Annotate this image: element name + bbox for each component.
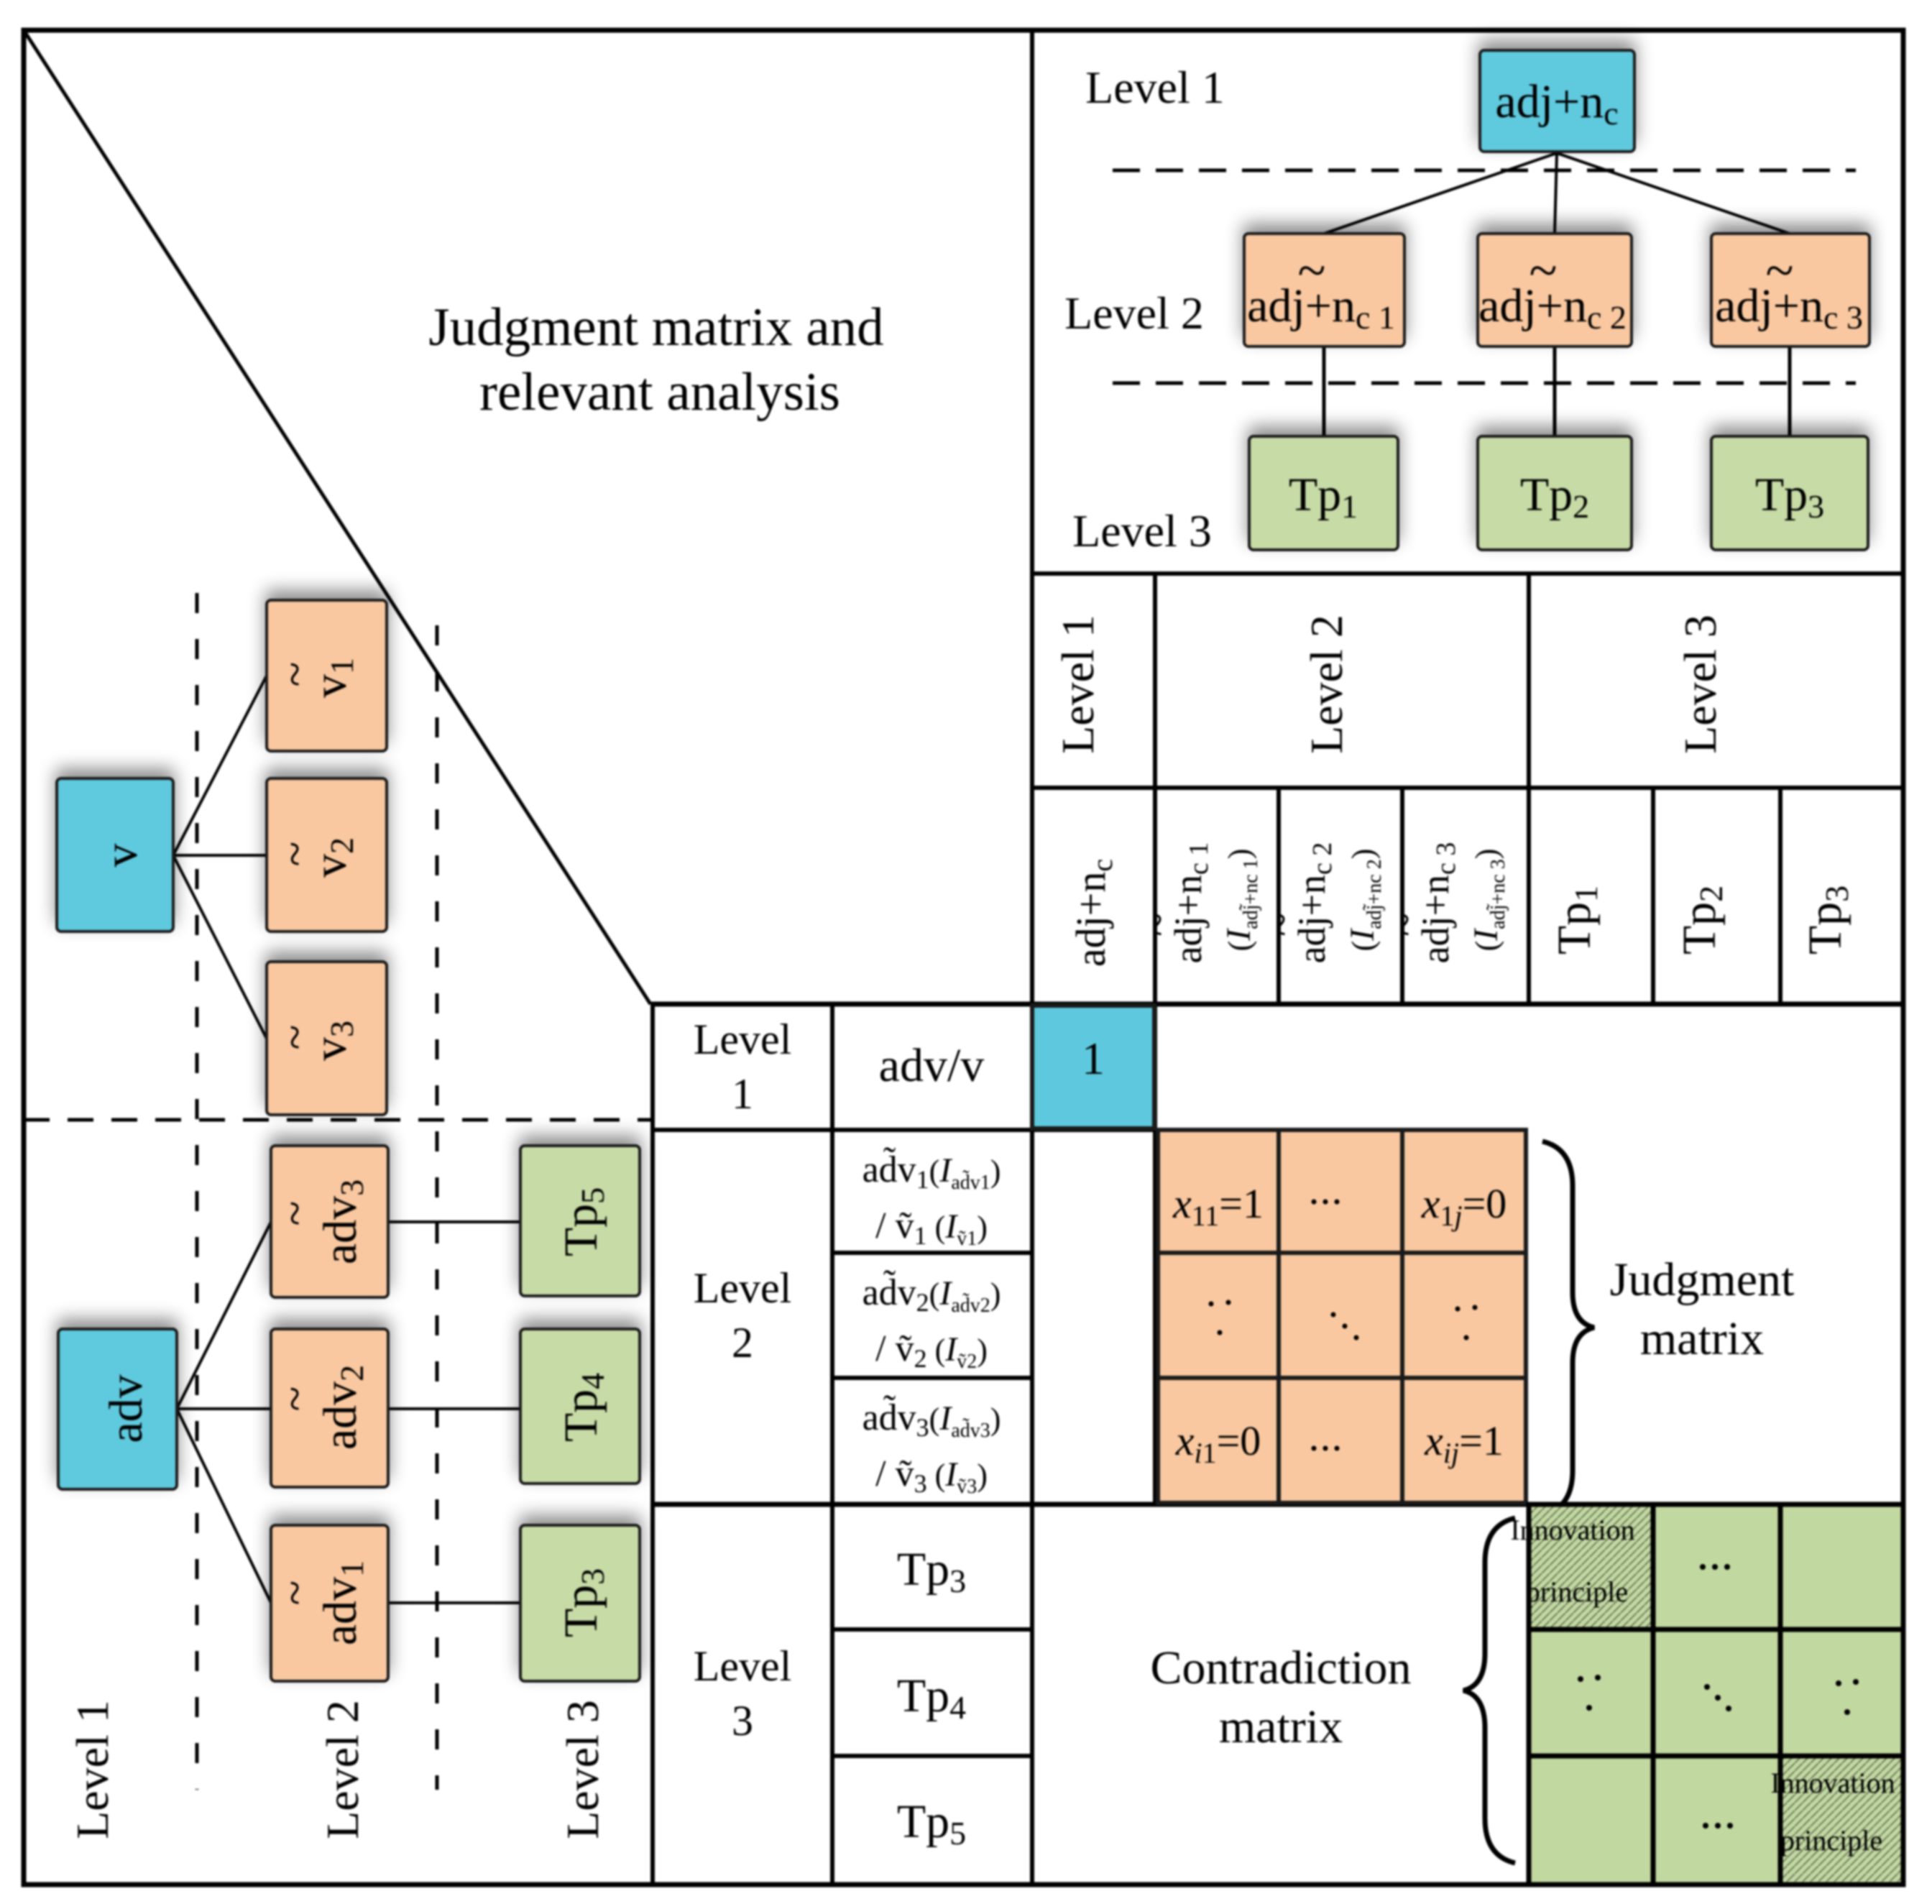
svg-text:matrix: matrix — [1219, 1701, 1343, 1753]
svg-text:~: ~ — [1529, 242, 1558, 299]
svg-text:Judgment matrix and: Judgment matrix and — [428, 298, 883, 357]
svg-text:~: ~ — [269, 1581, 320, 1606]
svg-text:~: ~ — [269, 842, 320, 867]
svg-text:Judgment: Judgment — [1610, 1254, 1795, 1306]
svg-text:Level 1: Level 1 — [1052, 615, 1103, 754]
svg-text:Level 1: Level 1 — [67, 1700, 118, 1839]
svg-text:Level 2: Level 2 — [1064, 288, 1204, 339]
svg-text:matrix: matrix — [1640, 1312, 1764, 1365]
svg-text:adv: adv — [100, 1374, 152, 1443]
svg-text:~: ~ — [269, 662, 320, 687]
svg-text:1: 1 — [732, 1070, 753, 1118]
svg-text:~: ~ — [1133, 912, 1182, 937]
svg-text:Level: Level — [694, 1642, 792, 1690]
svg-text:Level 3: Level 3 — [1675, 615, 1726, 754]
svg-text:Level 2: Level 2 — [317, 1700, 368, 1839]
svg-text:xi1=0: xi1=0 — [1175, 1417, 1261, 1469]
svg-text:xij=1: xij=1 — [1424, 1417, 1504, 1469]
svg-text:~: ~ — [1766, 242, 1794, 299]
svg-text:Level 2: Level 2 — [1301, 615, 1352, 754]
svg-text:principle: principle — [1780, 1824, 1882, 1857]
svg-text:Innovation: Innovation — [1770, 1767, 1895, 1799]
svg-text:adj+nc: adj+nc — [1067, 859, 1118, 967]
svg-text:~: ~ — [1381, 912, 1430, 937]
svg-text:Innovation: Innovation — [1510, 1514, 1634, 1546]
svg-text:Level 3: Level 3 — [557, 1700, 608, 1839]
svg-text:relevant analysis: relevant analysis — [479, 362, 840, 422]
svg-text:principle: principle — [1526, 1576, 1628, 1608]
svg-text:Contradiction: Contradiction — [1151, 1642, 1412, 1694]
svg-text:3: 3 — [732, 1697, 753, 1744]
svg-text:Level: Level — [694, 1016, 792, 1063]
svg-text:Level 3: Level 3 — [1072, 505, 1212, 556]
svg-text:2: 2 — [732, 1319, 753, 1366]
svg-text:~: ~ — [1257, 912, 1306, 937]
svg-text:v: v — [95, 844, 147, 868]
svg-text:~: ~ — [269, 1025, 320, 1050]
svg-text:Level 1: Level 1 — [1085, 62, 1225, 113]
svg-text:adj+nc: adj+nc — [1495, 75, 1618, 132]
svg-text:x1j=0: x1j=0 — [1421, 1180, 1507, 1232]
svg-text:~: ~ — [1298, 242, 1326, 299]
svg-text:adv/v: adv/v — [879, 1039, 985, 1092]
svg-text:Level: Level — [694, 1264, 792, 1312]
svg-text:~: ~ — [269, 1386, 320, 1412]
svg-text:~: ~ — [269, 1201, 320, 1226]
svg-text:1: 1 — [1082, 1033, 1105, 1084]
